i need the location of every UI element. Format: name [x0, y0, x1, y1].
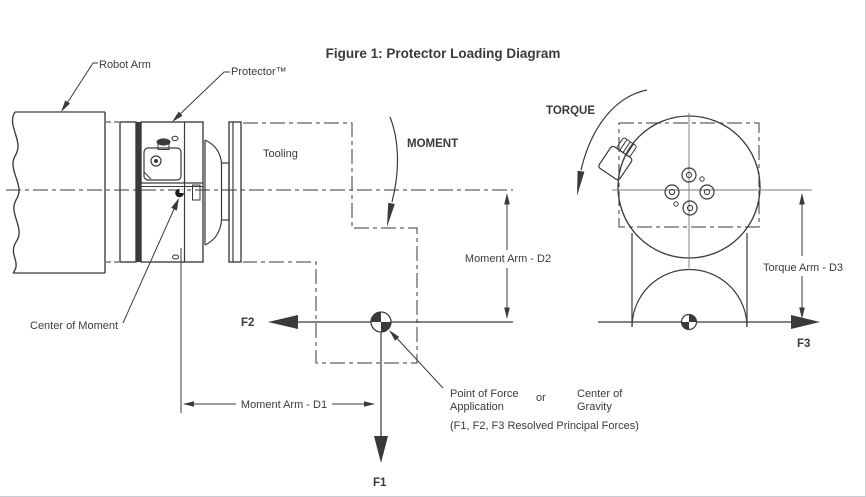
bolt-outer: [700, 185, 714, 199]
protector-front-view: [120, 122, 229, 262]
cg-quadrant-bl: [682, 322, 690, 330]
tooling-mounting-plate: [229, 122, 241, 262]
robot-arm-break-line: [13, 112, 20, 273]
or-label: or: [536, 392, 546, 404]
protector-coupling: [205, 140, 229, 245]
diagram-page: Figure 1: Protector Loading Diagram: [0, 0, 866, 497]
torque-arm-d3-label: Torque Arm - D3: [763, 262, 843, 274]
bolt-outer: [683, 201, 697, 215]
force-system-end: [598, 315, 820, 330]
moment-arm-d2-label: Moment Arm - D2: [465, 253, 551, 265]
keyway: [193, 185, 201, 200]
resolved-forces-note: (F1, F2, F3 Resolved Principal Forces): [450, 420, 639, 432]
bolt-inner: [687, 205, 692, 210]
moment-label: MOMENT: [407, 138, 458, 150]
robot-arm-label: Robot Arm: [99, 59, 151, 71]
tooling-label: Tooling: [263, 148, 298, 160]
leader-protector: [172, 72, 230, 122]
protector-label: Protector™: [231, 66, 287, 78]
end-view-lower-body: [632, 233, 747, 327]
protector-end-view: [598, 113, 812, 327]
cg-symbol-end: [682, 315, 697, 330]
bolt-pattern: [665, 168, 714, 215]
coupling-hub: [222, 163, 230, 220]
protector-loading-diagram: Figure 1: Protector Loading Diagram: [0, 0, 866, 497]
leader-line: [176, 72, 230, 118]
f2-label: F2: [241, 317, 254, 329]
leader-robot-arm: [61, 63, 98, 112]
dowel-hole-ne: [700, 177, 704, 181]
sensor-face-dot: [154, 159, 158, 163]
d3-arrow-top: [799, 193, 805, 205]
bolt-right: [700, 185, 714, 199]
bolt-bottom: [683, 201, 697, 215]
protector-seal-strip: [136, 122, 141, 262]
dowel-hole-sw: [674, 202, 678, 206]
center-of-moment-ball: [175, 189, 184, 198]
torque-arc: [581, 90, 647, 170]
f1-arrowhead: [374, 436, 388, 463]
torque-label: TORQUE: [546, 105, 595, 117]
f1-label: F1: [373, 477, 387, 489]
sensor-housing: [144, 148, 181, 180]
leader-line: [123, 207, 175, 323]
vent-hole-bottom: [173, 255, 179, 259]
coupling-bottom-curve: [205, 220, 222, 245]
leader-arrowhead: [171, 198, 179, 211]
protector-rear-flange: [120, 122, 136, 262]
cg-quadrant-tr: [689, 315, 697, 323]
d2-arrow-top: [504, 193, 510, 205]
moment-arc: [390, 117, 398, 202]
sensor-housing-bevel: [144, 172, 151, 179]
figure-title: Figure 1: Protector Loading Diagram: [326, 46, 561, 61]
f3-arrowhead: [791, 315, 820, 329]
bolt-left: [665, 185, 679, 199]
torque-arrowhead: [577, 171, 584, 196]
cg-symbol-front: [371, 312, 391, 332]
protector-body: [141, 122, 203, 262]
d1-arrow-left: [183, 401, 194, 407]
protector-sensor-block: [144, 136, 181, 180]
moment-arm-d1-label: Moment Arm - D1: [241, 399, 327, 411]
point-of-force-label-line1: Point of Force: [450, 388, 518, 400]
vent-hole-top: [172, 136, 178, 140]
leader-center-of-moment: [123, 198, 179, 323]
leader-arrowhead: [61, 100, 70, 112]
center-of-moment-label: Center of Moment: [30, 320, 118, 332]
dimension-torque-arm-d3: [799, 193, 805, 319]
moment-arrow: [387, 117, 398, 227]
leader-line: [64, 63, 98, 108]
bolt-outer: [665, 185, 679, 199]
f2-arrowhead: [268, 315, 298, 329]
coupling-top-curve: [205, 140, 222, 163]
cg-quadrant-tl: [371, 312, 381, 322]
f3-label: F3: [797, 338, 810, 350]
moment-arrowhead: [387, 203, 395, 227]
dimension-moment-arm-d1: [181, 248, 375, 413]
center-of-gravity-label-line1: Center of: [577, 388, 623, 400]
screw-head: [157, 138, 171, 145]
d2-arrow-bottom: [504, 308, 510, 320]
center-of-gravity-label-line2: Gravity: [577, 401, 612, 413]
d1-arrow-right: [364, 401, 375, 407]
point-of-force-label-line2: Application: [450, 401, 504, 413]
ball-highlight: [180, 189, 184, 193]
robot-arm: [13, 112, 120, 273]
